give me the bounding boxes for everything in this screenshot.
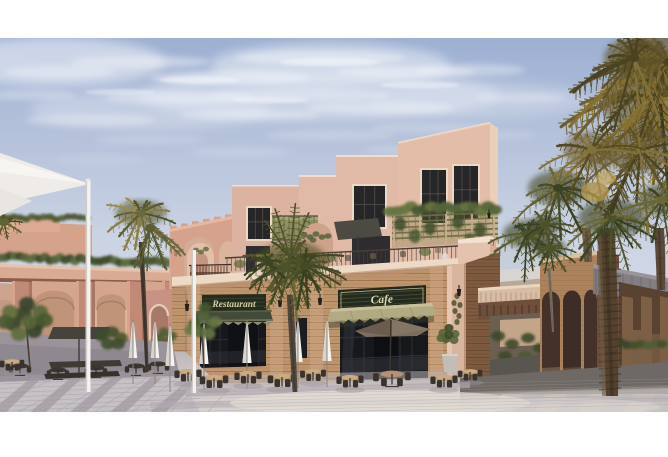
svg-text:Cafe: Cafe bbox=[370, 294, 393, 307]
svg-text:Restaurant: Restaurant bbox=[211, 300, 256, 310]
